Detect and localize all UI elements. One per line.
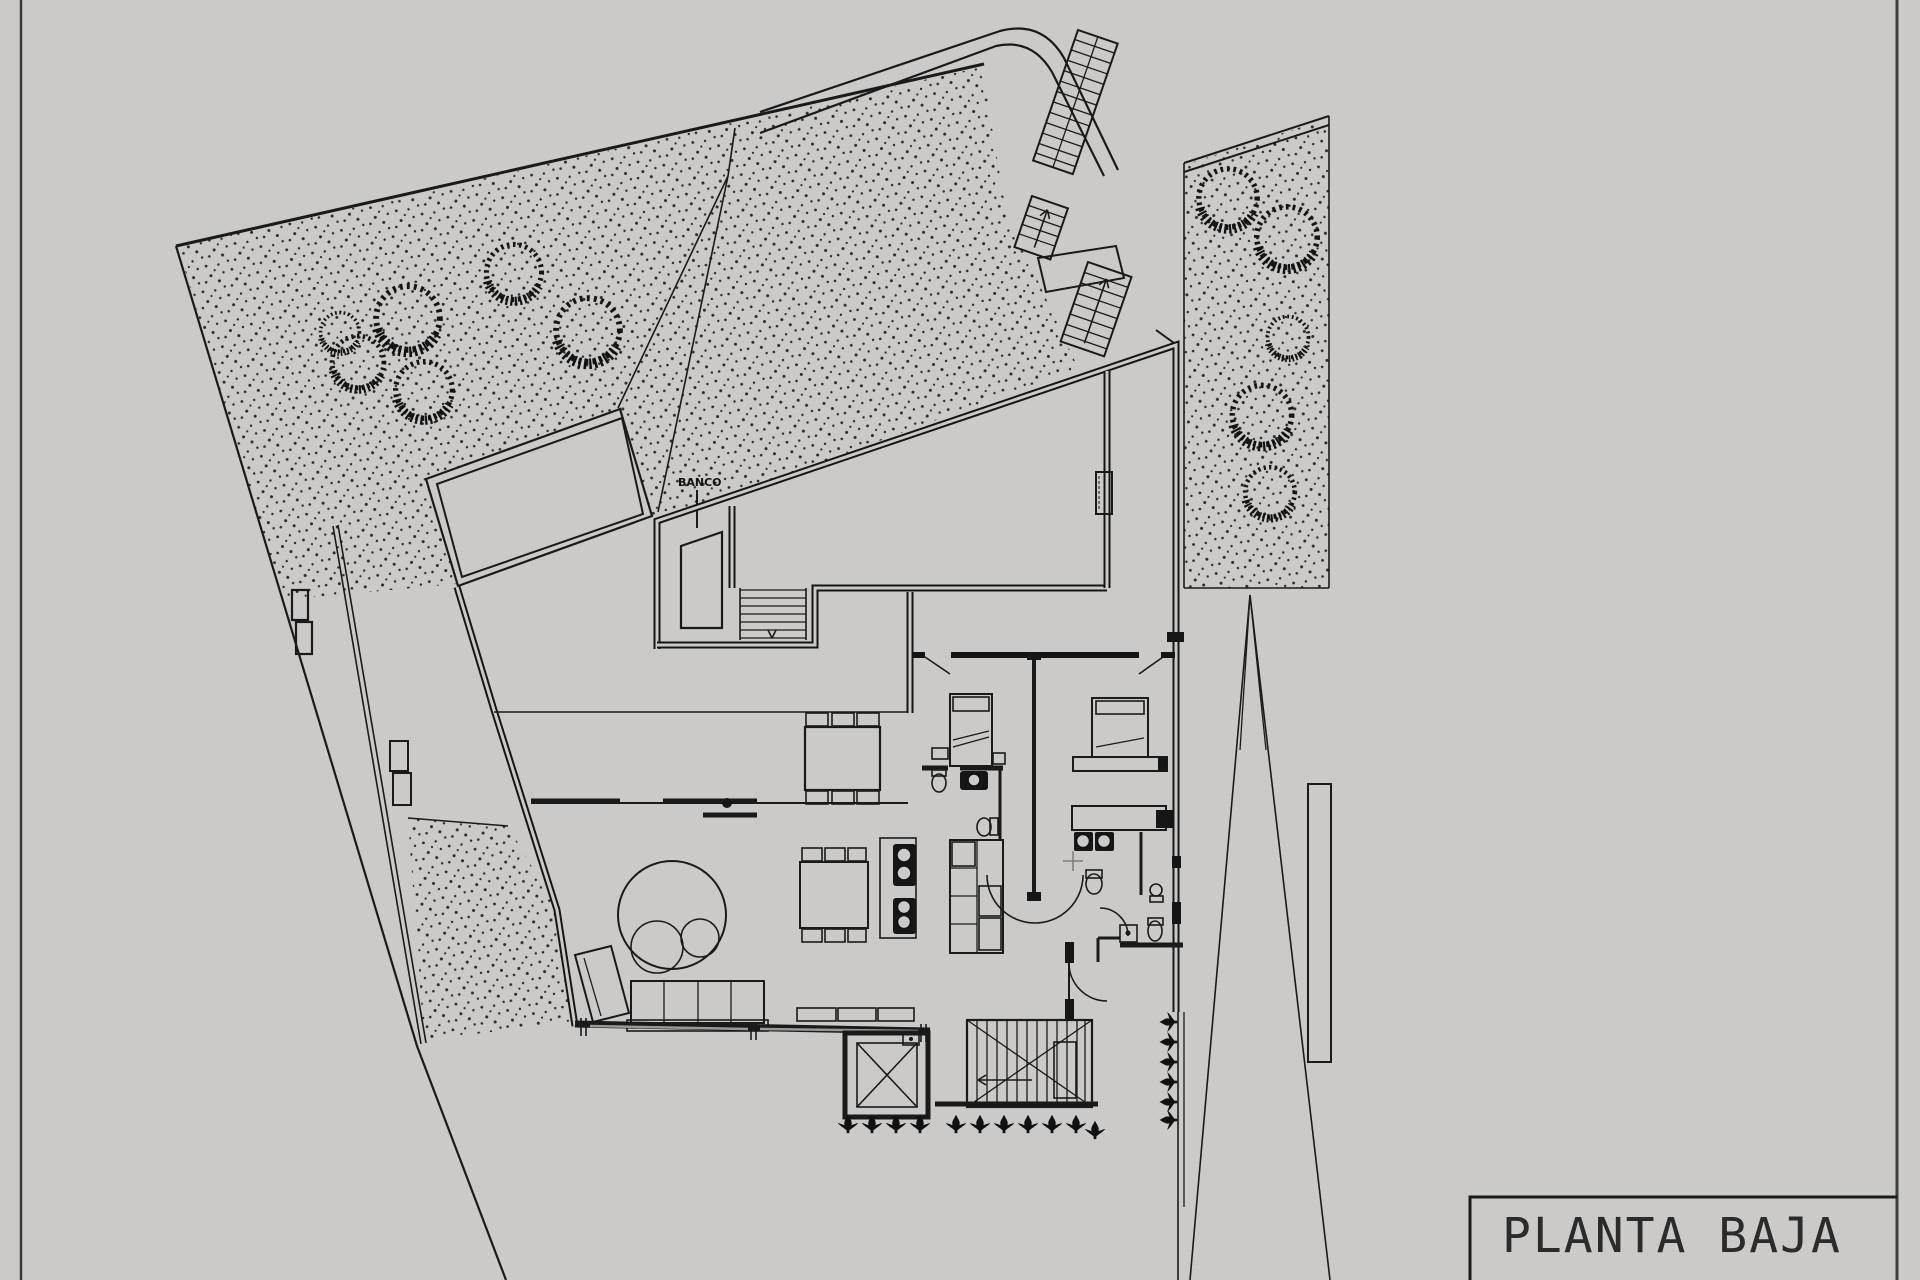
- kitchen-table: [800, 848, 868, 942]
- elevator-shaft: [845, 1033, 928, 1117]
- drawing-sheet: BANCO: [0, 0, 1920, 1280]
- bathrooms: [922, 768, 1183, 1021]
- closet: [950, 840, 1003, 953]
- entrance-door: [1065, 942, 1107, 1021]
- cypress-triangles: [1178, 595, 1331, 1280]
- interior-stairs: [740, 588, 806, 640]
- round-sofa: [618, 861, 726, 973]
- title-block: PLANTA BAJA: [1470, 1197, 1897, 1280]
- garden-stipple-areas: [178, 67, 1329, 1040]
- dining-table: [805, 713, 880, 804]
- garden-right: [1184, 118, 1329, 588]
- sofa: [575, 946, 768, 1031]
- main-staircase: [935, 1020, 1098, 1107]
- bathroom-3: [1098, 918, 1183, 962]
- kitchen: [880, 838, 916, 938]
- garden-path-left: [408, 818, 575, 1040]
- title-text: PLANTA BAJA: [1502, 1208, 1842, 1264]
- bed-1: [932, 694, 1005, 766]
- banco-label: BANCO: [678, 476, 722, 489]
- bed-2: [1073, 698, 1167, 771]
- boundary-fence: [292, 525, 426, 1044]
- cabinet-row: [797, 1008, 914, 1021]
- floor-plan-canvas: BANCO: [0, 0, 1920, 1280]
- bathroom-2: [1072, 806, 1174, 902]
